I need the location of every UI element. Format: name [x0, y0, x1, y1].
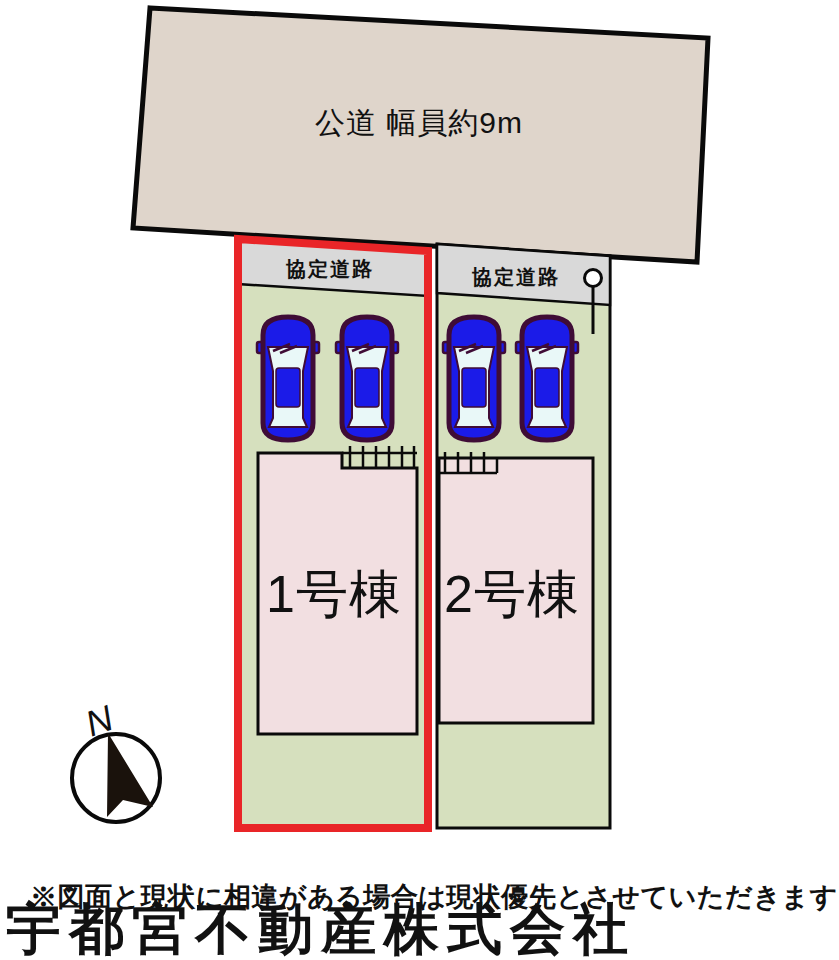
site-plan-page: 公道 幅員約9m 協定道路 協定道路 1号棟	[0, 0, 839, 960]
building-2-label: 2号棟	[444, 565, 580, 623]
plot-1-agreement-road-label: 協定道路	[285, 258, 374, 280]
plot-2-agreement-road-label: 協定道路	[471, 266, 560, 288]
building-2: 2号棟	[439, 452, 593, 723]
car-icon	[336, 317, 398, 440]
car-icon	[443, 317, 505, 440]
public-road-label: 公道 幅員約9m	[315, 106, 523, 139]
compass-north-label: N	[80, 697, 119, 745]
north-compass-icon: N	[72, 697, 160, 822]
site-plan-svg: 公道 幅員約9m 協定道路 協定道路 1号棟	[0, 0, 839, 960]
car-icon	[516, 317, 578, 440]
car-icon	[257, 317, 319, 440]
building-1-label: 1号棟	[266, 565, 402, 623]
building-1: 1号棟	[258, 446, 417, 734]
disclaimer-text: ※図面と現状に相違がある場合は現状優先とさせていただきます。	[30, 882, 839, 912]
